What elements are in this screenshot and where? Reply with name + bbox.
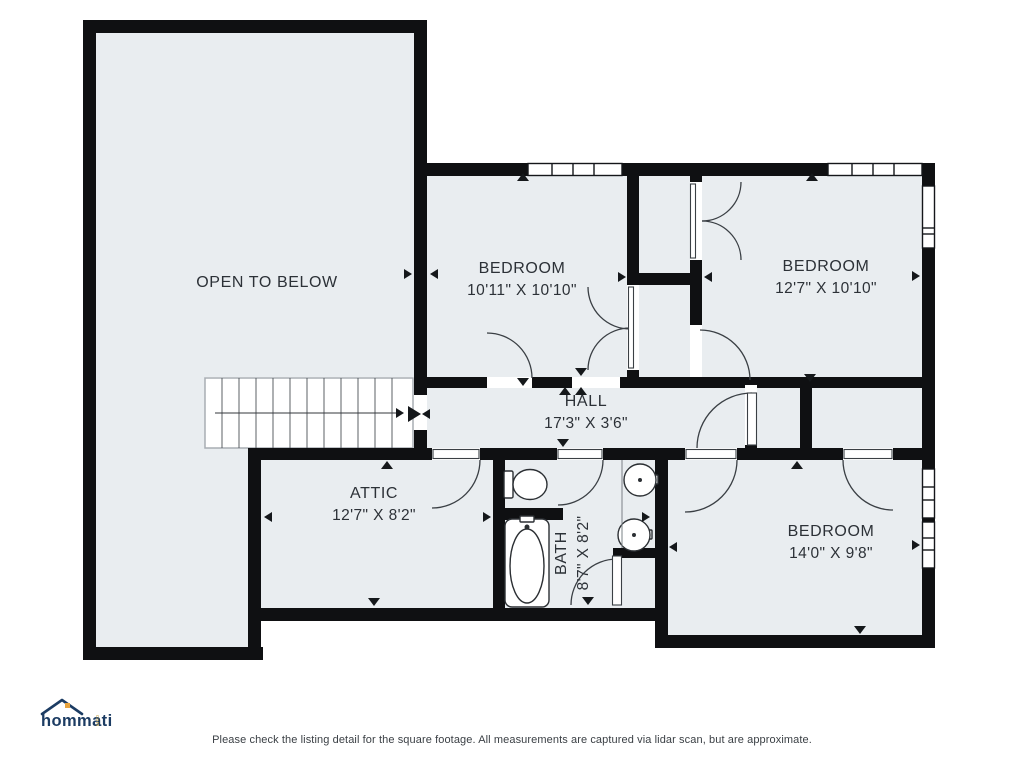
door-leaf-closet-bottom-right <box>844 450 892 459</box>
floor-bedroom-top-right <box>702 176 922 377</box>
door-leaf-attic <box>433 450 479 459</box>
stairs <box>205 378 413 448</box>
door-leaf-double <box>691 184 696 258</box>
floor-bedroom-bottom-right <box>668 460 922 635</box>
floor-bedroom-top-left <box>427 176 627 377</box>
logo-suffix: com <box>94 715 100 727</box>
toilet-icon <box>504 470 547 500</box>
window-bedroom-top-left <box>528 164 622 177</box>
floor-open-to-below-lower <box>96 448 248 647</box>
window-bedroom-bottom-right-2 <box>923 522 935 568</box>
floor-plan-drawing <box>0 0 1024 768</box>
floor-open-to-below-left <box>96 377 205 448</box>
disclaimer-text: Please check the listing detail for the … <box>0 734 1024 746</box>
door-leaf-closet-bifold <box>629 287 634 368</box>
bathtub-icon <box>505 516 549 607</box>
floor-linen-closet <box>757 387 800 448</box>
door-leaf-bath <box>558 450 602 459</box>
window-right-upper <box>923 186 935 248</box>
door-leaf-bedroom-bottom-right <box>686 450 736 459</box>
door-leaf-bath-lower <box>613 556 622 605</box>
floor-closet-right <box>812 387 922 448</box>
door-leaf-hall-end <box>748 393 757 445</box>
logo-text: hommati <box>41 712 113 731</box>
floorplan-page: OPEN TO BELOW BEDROOM 10'11" X 10'10" BE… <box>0 0 1024 768</box>
tub-faucet <box>520 516 534 522</box>
window-bedroom-bottom-right-1 <box>923 469 935 518</box>
floor-attic <box>261 460 493 608</box>
hommati-logo: hommati com <box>38 697 118 739</box>
window-bedroom-top-right <box>828 164 922 177</box>
floor-open-to-below <box>96 33 414 377</box>
